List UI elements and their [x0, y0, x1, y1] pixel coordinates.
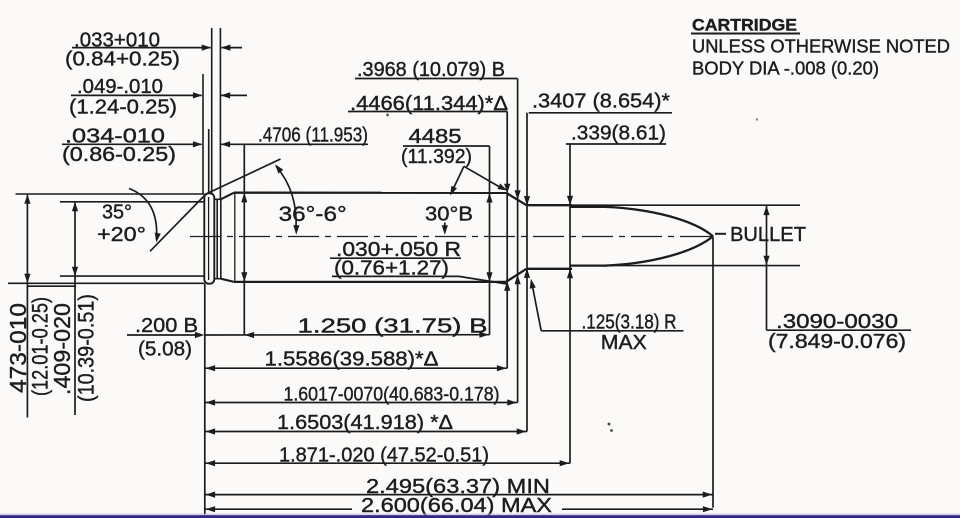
- svg-text:.3407 (8.654)*: .3407 (8.654)*: [532, 91, 670, 113]
- svg-text:CARTRIDGE: CARTRIDGE: [692, 17, 797, 35]
- svg-text:UNLESS OTHERWISE NOTED: UNLESS OTHERWISE NOTED: [692, 37, 950, 57]
- svg-text:BULLET: BULLET: [730, 224, 806, 246]
- svg-text:1.6017-0070(40.683-0.178): 1.6017-0070(40.683-0.178): [284, 384, 500, 405]
- svg-text:.3968 (10.079) B: .3968 (10.079) B: [357, 59, 505, 81]
- svg-text:.409-020: .409-020: [49, 303, 75, 395]
- svg-text:30°B: 30°B: [425, 204, 473, 226]
- svg-text:.339(8.61): .339(8.61): [571, 123, 666, 145]
- svg-text:(1.24-0.25): (1.24-0.25): [69, 97, 177, 119]
- svg-text:.4706 (11.953): .4706 (11.953): [258, 125, 368, 147]
- svg-text:(10.39-0.51): (10.39-0.51): [74, 294, 99, 402]
- svg-text:(7.849-0.076): (7.849-0.076): [768, 331, 906, 353]
- svg-text:36°-6°: 36°-6°: [279, 203, 347, 226]
- svg-text:+20°: +20°: [97, 224, 146, 246]
- svg-text:(0.76+1.27): (0.76+1.27): [334, 258, 449, 280]
- svg-text:MAX: MAX: [601, 332, 647, 354]
- svg-text:1.5586(39.588)*Δ: 1.5586(39.588)*Δ: [265, 349, 439, 371]
- svg-text:.4466(11.344)*Δ: .4466(11.344)*Δ: [350, 93, 508, 115]
- svg-text:.3090-0030: .3090-0030: [776, 311, 898, 333]
- svg-text:.125(3.18) R: .125(3.18) R: [582, 311, 677, 333]
- svg-text:1.6503(41.918) *Δ: 1.6503(41.918) *Δ: [277, 412, 453, 434]
- svg-text:(0.84+0.25): (0.84+0.25): [65, 49, 180, 71]
- svg-text:35°: 35°: [102, 202, 132, 224]
- svg-text:BODY DIA -.008 (0.20): BODY DIA -.008 (0.20): [692, 58, 879, 78]
- svg-text:(0.86-0.25): (0.86-0.25): [62, 144, 176, 166]
- svg-text:(11.392): (11.392): [401, 146, 472, 168]
- svg-text:1.250 (31.75) B: 1.250 (31.75) B: [298, 315, 488, 337]
- svg-text:(5.08): (5.08): [138, 339, 192, 361]
- svg-text:.049-.010: .049-.010: [77, 76, 163, 98]
- svg-text:.200 B: .200 B: [135, 315, 198, 337]
- svg-text:1.871-.020 (47.52-0.51): 1.871-.020 (47.52-0.51): [279, 445, 489, 467]
